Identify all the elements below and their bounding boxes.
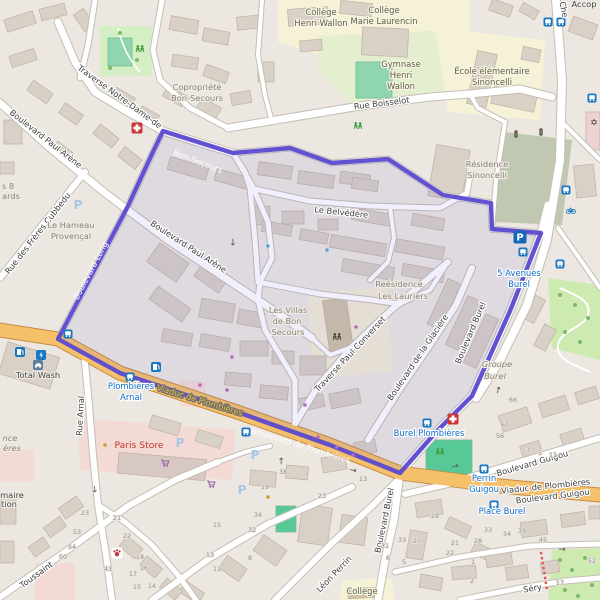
bus-icon: [557, 18, 566, 27]
map-label: Perrin: [472, 473, 496, 483]
house-number: 22: [446, 549, 454, 557]
house-number: 23: [318, 492, 326, 500]
signal-icon: [514, 130, 517, 137]
tree: [570, 568, 574, 572]
sdot-icon: [198, 383, 202, 387]
drop-icon: [325, 248, 328, 251]
map-label: Collège: [305, 7, 336, 17]
house-number: 33: [484, 526, 492, 534]
map-label: Burel: [484, 371, 506, 381]
map-label: tion: [1, 499, 17, 509]
map-label: Henri Wallon: [294, 18, 347, 28]
svg-text:→: →: [227, 238, 237, 246]
map-label: Sinoncelli: [472, 77, 512, 87]
tree: [118, 31, 122, 35]
bus-icon: [544, 18, 553, 27]
house-number: 32: [248, 526, 256, 534]
fuel-icon: [151, 362, 161, 372]
house-number: 19: [261, 483, 269, 491]
svg-text:P: P: [176, 436, 185, 450]
tree: [583, 556, 587, 560]
map-label: Sinoncelli: [467, 170, 507, 180]
bus-icon: [562, 186, 571, 195]
sports-pitch: [108, 38, 132, 66]
building: [0, 541, 14, 563]
house-number: 23: [81, 509, 89, 517]
map-label: Provençal: [51, 231, 91, 241]
house-number: 45: [539, 536, 547, 544]
svg-text:✡: ✡: [590, 119, 598, 129]
house-number: 5: [402, 558, 406, 566]
svg-text:→: →: [558, 545, 566, 555]
house-number: 6: [386, 554, 390, 562]
house-number: 66: [509, 396, 517, 404]
tree: [563, 330, 567, 334]
house-number: 8: [248, 554, 252, 562]
house-number: 3: [526, 446, 530, 454]
house-number: 28: [474, 537, 482, 545]
house-number: 38: [279, 468, 287, 476]
landuse-area: [0, 448, 34, 482]
house-number: 56: [496, 432, 504, 440]
house-number: 31: [381, 542, 389, 550]
signal-icon: [539, 128, 542, 135]
building: [589, 506, 600, 519]
vet-icon: [112, 548, 123, 559]
house-number: 15: [133, 583, 141, 591]
map-label: ères: [3, 443, 22, 453]
house-number: 17: [556, 579, 564, 587]
house-number: 33: [398, 536, 406, 544]
arrow-icon: →: [89, 485, 100, 494]
psmall-icon: P: [74, 198, 83, 212]
map-label: ards: [2, 191, 20, 201]
house-number: 21: [451, 539, 459, 547]
psmall-icon: P: [251, 448, 260, 462]
map-label: 5 Avenues: [497, 268, 540, 278]
house-number: 52: [588, 557, 596, 565]
map-label: Collège: [368, 5, 399, 15]
sdot-icon: [230, 355, 234, 359]
house-number: 50: [59, 553, 67, 561]
building: [361, 27, 408, 57]
tree: [135, 58, 139, 62]
drop-icon: [266, 244, 269, 247]
map-label: nce: [3, 433, 18, 443]
building: [0, 162, 14, 174]
odot-icon: [266, 495, 270, 499]
map-label: Plombières: [108, 381, 154, 391]
house-number: 13: [206, 551, 214, 559]
pbig-icon: P: [514, 231, 527, 244]
map-label: Guigou: [469, 484, 499, 494]
worship-icon: ✡: [590, 119, 598, 129]
tree: [576, 594, 580, 598]
map-viewport[interactable]: PPPPP✡→→→→→→→ Traverse Notre-Dame-deBoul…: [0, 0, 600, 600]
tree: [558, 558, 562, 562]
house-number: 21: [113, 514, 121, 522]
map-label: Groupe: [482, 359, 513, 369]
house-number: 54: [68, 543, 76, 551]
house-number: 34: [503, 530, 511, 538]
sdot-icon: [303, 403, 307, 407]
svg-text:→: →: [89, 485, 100, 494]
psmall-icon: P: [238, 483, 247, 497]
map-label: Copropriété: [173, 82, 222, 92]
map-label: de Bon: [272, 316, 301, 326]
map-label: Les Villas: [269, 305, 307, 315]
house-number: 2: [470, 577, 474, 585]
landuse-area: [548, 548, 600, 600]
map-label: Accop: [572, 0, 597, 9]
tree: [586, 316, 590, 320]
map-label: Burel Plombières: [394, 428, 465, 438]
building: [300, 39, 323, 52]
pharmacy-icon: [132, 123, 143, 134]
building: [573, 164, 596, 198]
arrow-icon: →: [277, 457, 287, 465]
house-number: 17: [129, 570, 137, 578]
map-label: Wallon: [387, 81, 415, 91]
bus-icon: [64, 330, 73, 339]
building: [285, 465, 308, 480]
house-number: 43: [104, 565, 112, 573]
map-label: Collège: [346, 586, 377, 596]
psmall-icon: P: [176, 436, 185, 450]
building: [505, 565, 529, 581]
house-number: 14: [148, 582, 156, 590]
map-label: École élémentaire: [454, 65, 530, 76]
house-number: 18: [136, 553, 144, 561]
svg-text:P: P: [251, 448, 260, 462]
tree: [108, 66, 112, 70]
sdot-icon: [225, 388, 229, 392]
house-number: 11: [213, 565, 221, 573]
bus-icon: [242, 428, 251, 437]
arrow-icon: →: [558, 545, 566, 555]
map-label: Bon-Secours: [171, 93, 223, 103]
tree: [573, 303, 577, 307]
house-number: 1: [471, 558, 475, 566]
map-label: Arnal: [120, 392, 142, 402]
map-label: Place Burel: [479, 506, 526, 516]
svg-text:→: →: [277, 457, 287, 465]
bus-icon: [519, 248, 528, 257]
ev-icon: [36, 350, 46, 360]
svg-text:P: P: [74, 198, 83, 212]
landuse-area: [548, 278, 600, 360]
sdot-icon: [316, 435, 320, 439]
tree: [558, 293, 562, 297]
house-number: 20: [413, 537, 421, 545]
map-label: Le Hameau: [47, 220, 94, 230]
svg-text:P: P: [238, 483, 247, 497]
map-canvas[interactable]: PPPPP✡→→→→→→→ Traverse Notre-Dame-deBoul…: [0, 0, 600, 600]
svg-text:P: P: [516, 233, 523, 244]
pharmacy-icon: [448, 414, 459, 425]
house-number: 16: [140, 564, 148, 572]
house-number: 11: [549, 451, 557, 459]
fuel-icon: [15, 347, 25, 357]
map-label: Les Lauriers: [378, 291, 428, 301]
house-number: 34: [254, 511, 262, 519]
map-label: s 8: [2, 181, 14, 191]
house-number: 60: [501, 421, 509, 429]
map-label: Burel: [508, 279, 530, 289]
bus-icon: [423, 419, 432, 428]
house-number: 53: [73, 528, 81, 536]
bus-icon: [556, 260, 565, 269]
sdot-icon: [354, 325, 358, 329]
arrow-icon: →: [227, 238, 237, 246]
tree: [590, 583, 594, 587]
odot-icon: [103, 443, 107, 447]
house-number: 22: [123, 532, 131, 540]
house-number: 15: [213, 521, 221, 529]
map-label: Rue Arnal: [74, 396, 86, 436]
tree: [578, 340, 582, 344]
house-number: 13: [359, 475, 367, 483]
map-label: Marie Laurencin: [350, 16, 417, 26]
carwash-icon: [33, 360, 43, 370]
map-label: Reésidence: [375, 279, 423, 289]
map-label: Gymnase: [381, 59, 421, 69]
house-number: 5: [538, 449, 542, 457]
tree: [563, 588, 567, 592]
house-number: 39: [518, 527, 526, 535]
house-number: 28: [431, 512, 439, 520]
map-label: Secours: [271, 327, 304, 337]
map-label: Paris Store: [114, 440, 163, 451]
map-label: Henri: [390, 70, 413, 80]
sdot-icon: [335, 445, 339, 449]
map-label: Total Wash: [15, 370, 60, 380]
bus-icon: [588, 94, 597, 103]
map-label: Résidence: [466, 159, 508, 169]
